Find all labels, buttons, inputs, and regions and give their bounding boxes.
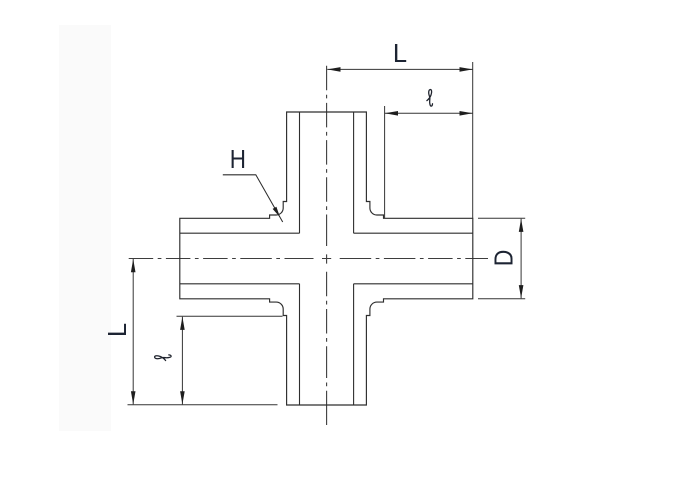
- svg-text:L: L: [393, 40, 407, 68]
- svg-text:H: H: [230, 146, 246, 175]
- svg-text:D: D: [491, 250, 519, 267]
- svg-text:L: L: [104, 323, 132, 337]
